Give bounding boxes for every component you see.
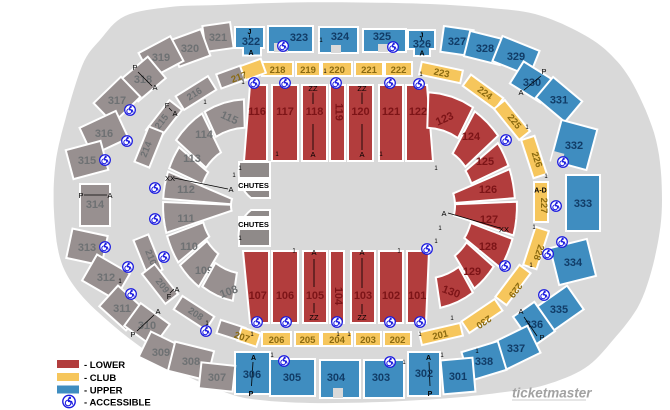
svg-text:117: 117 bbox=[276, 106, 294, 118]
svg-text:107: 107 bbox=[249, 290, 267, 302]
svg-text:ZZ: ZZ bbox=[309, 313, 319, 322]
svg-text:227: 227 bbox=[538, 198, 549, 214]
svg-text:319: 319 bbox=[152, 52, 170, 64]
svg-text:313: 313 bbox=[78, 242, 96, 254]
svg-text:A: A bbox=[310, 150, 315, 159]
svg-text:128: 128 bbox=[479, 241, 497, 253]
svg-text:120: 120 bbox=[351, 106, 369, 118]
svg-text:CHUTES: CHUTES bbox=[238, 220, 269, 229]
svg-text:P: P bbox=[132, 63, 137, 72]
svg-text:104: 104 bbox=[332, 287, 344, 306]
svg-text:321: 321 bbox=[209, 32, 227, 44]
svg-text:P: P bbox=[428, 391, 433, 398]
svg-text:124: 124 bbox=[462, 131, 481, 143]
svg-text:A: A bbox=[426, 355, 431, 362]
svg-text:101: 101 bbox=[408, 290, 426, 302]
svg-text:103: 103 bbox=[354, 290, 372, 302]
svg-text:XX: XX bbox=[499, 225, 509, 234]
svg-text:218: 218 bbox=[270, 65, 286, 76]
svg-text:A: A bbox=[419, 51, 424, 58]
svg-text:113: 113 bbox=[183, 153, 201, 165]
svg-text:122: 122 bbox=[409, 106, 427, 118]
svg-text:325: 325 bbox=[373, 31, 391, 43]
svg-text:P: P bbox=[130, 330, 135, 339]
svg-text:A: A bbox=[359, 150, 364, 159]
svg-text:125: 125 bbox=[476, 156, 494, 168]
svg-text:312: 312 bbox=[97, 272, 115, 284]
svg-text:112: 112 bbox=[177, 184, 195, 196]
svg-text:338: 338 bbox=[475, 356, 493, 368]
svg-text:P: P bbox=[539, 333, 544, 342]
svg-text:315: 315 bbox=[78, 155, 96, 167]
svg-text:333: 333 bbox=[574, 198, 592, 210]
svg-text:A: A bbox=[518, 88, 523, 97]
svg-text:118: 118 bbox=[306, 106, 324, 118]
svg-text:126: 126 bbox=[479, 184, 497, 196]
svg-text:ticketmaster: ticketmaster bbox=[512, 386, 592, 401]
svg-text:A: A bbox=[518, 307, 523, 316]
svg-text:329: 329 bbox=[507, 51, 525, 63]
svg-text:A: A bbox=[248, 50, 253, 57]
svg-text:219: 219 bbox=[300, 65, 316, 76]
svg-text:P: P bbox=[541, 67, 546, 76]
svg-text:P: P bbox=[78, 191, 83, 200]
svg-text:CHUTES: CHUTES bbox=[238, 181, 269, 190]
svg-text:J: J bbox=[248, 29, 252, 36]
svg-text:- CLUB: - CLUB bbox=[84, 373, 116, 384]
svg-text:A: A bbox=[251, 355, 256, 362]
svg-text:- ACCESSIBLE: - ACCESSIBLE bbox=[84, 398, 151, 409]
svg-text:ZZ: ZZ bbox=[308, 84, 318, 93]
svg-text:P: P bbox=[249, 391, 254, 398]
svg-text:A: A bbox=[152, 83, 157, 92]
svg-text:332: 332 bbox=[565, 140, 583, 152]
svg-text:A: A bbox=[174, 285, 179, 294]
svg-text:309: 309 bbox=[152, 347, 170, 359]
svg-text:314: 314 bbox=[86, 199, 105, 211]
svg-text:307: 307 bbox=[208, 372, 226, 384]
svg-text:A-D: A-D bbox=[534, 188, 546, 195]
svg-text:327: 327 bbox=[448, 36, 466, 48]
svg-text:302: 302 bbox=[415, 368, 433, 380]
svg-text:304: 304 bbox=[327, 372, 346, 384]
svg-text:206: 206 bbox=[269, 335, 285, 346]
svg-text:A: A bbox=[441, 209, 446, 218]
svg-text:A: A bbox=[107, 191, 112, 200]
svg-text:- UPPER: - UPPER bbox=[84, 386, 123, 397]
svg-text:202: 202 bbox=[390, 335, 406, 346]
svg-text:121: 121 bbox=[382, 106, 400, 118]
svg-text:129: 129 bbox=[463, 266, 481, 278]
svg-text:205: 205 bbox=[300, 335, 317, 346]
svg-text:119: 119 bbox=[333, 103, 345, 121]
svg-text:220: 220 bbox=[329, 65, 345, 76]
svg-text:328: 328 bbox=[476, 43, 494, 55]
svg-text:A: A bbox=[172, 109, 177, 118]
svg-text:A: A bbox=[228, 185, 233, 194]
svg-text:305: 305 bbox=[283, 372, 301, 384]
svg-text:F: F bbox=[165, 101, 170, 110]
svg-text:A: A bbox=[359, 248, 364, 257]
svg-text:XX: XX bbox=[165, 174, 175, 183]
svg-text:127: 127 bbox=[480, 214, 498, 226]
svg-text:316: 316 bbox=[95, 128, 113, 140]
svg-text:111: 111 bbox=[177, 213, 194, 225]
svg-text:114: 114 bbox=[195, 129, 214, 141]
svg-text:- LOWER: - LOWER bbox=[84, 360, 125, 371]
svg-text:324: 324 bbox=[331, 31, 350, 43]
svg-text:337: 337 bbox=[507, 343, 525, 355]
svg-text:308: 308 bbox=[182, 356, 200, 368]
svg-text:320: 320 bbox=[181, 43, 199, 55]
svg-text:334: 334 bbox=[564, 257, 583, 269]
svg-text:322: 322 bbox=[242, 36, 260, 48]
svg-text:221: 221 bbox=[361, 65, 378, 76]
svg-text:326: 326 bbox=[413, 39, 431, 51]
svg-text:A: A bbox=[155, 307, 160, 316]
svg-text:203: 203 bbox=[360, 335, 376, 346]
svg-text:306: 306 bbox=[243, 369, 261, 381]
svg-text:317: 317 bbox=[108, 95, 126, 107]
svg-text:311: 311 bbox=[113, 303, 131, 315]
svg-text:102: 102 bbox=[382, 290, 400, 302]
svg-text:301: 301 bbox=[449, 371, 467, 383]
svg-text:J: J bbox=[420, 33, 424, 40]
svg-text:318: 318 bbox=[134, 74, 152, 86]
svg-text:331: 331 bbox=[550, 95, 568, 107]
svg-text:222: 222 bbox=[391, 65, 407, 76]
svg-text:105: 105 bbox=[306, 290, 324, 302]
svg-text:F: F bbox=[167, 292, 172, 301]
svg-text:106: 106 bbox=[276, 290, 294, 302]
svg-text:A: A bbox=[311, 248, 316, 257]
svg-text:116: 116 bbox=[248, 106, 266, 118]
svg-text:323: 323 bbox=[290, 32, 308, 44]
svg-text:335: 335 bbox=[550, 304, 568, 316]
svg-text:303: 303 bbox=[372, 372, 390, 384]
svg-text:ZZ: ZZ bbox=[357, 84, 367, 93]
svg-text:ZZ: ZZ bbox=[357, 313, 367, 322]
